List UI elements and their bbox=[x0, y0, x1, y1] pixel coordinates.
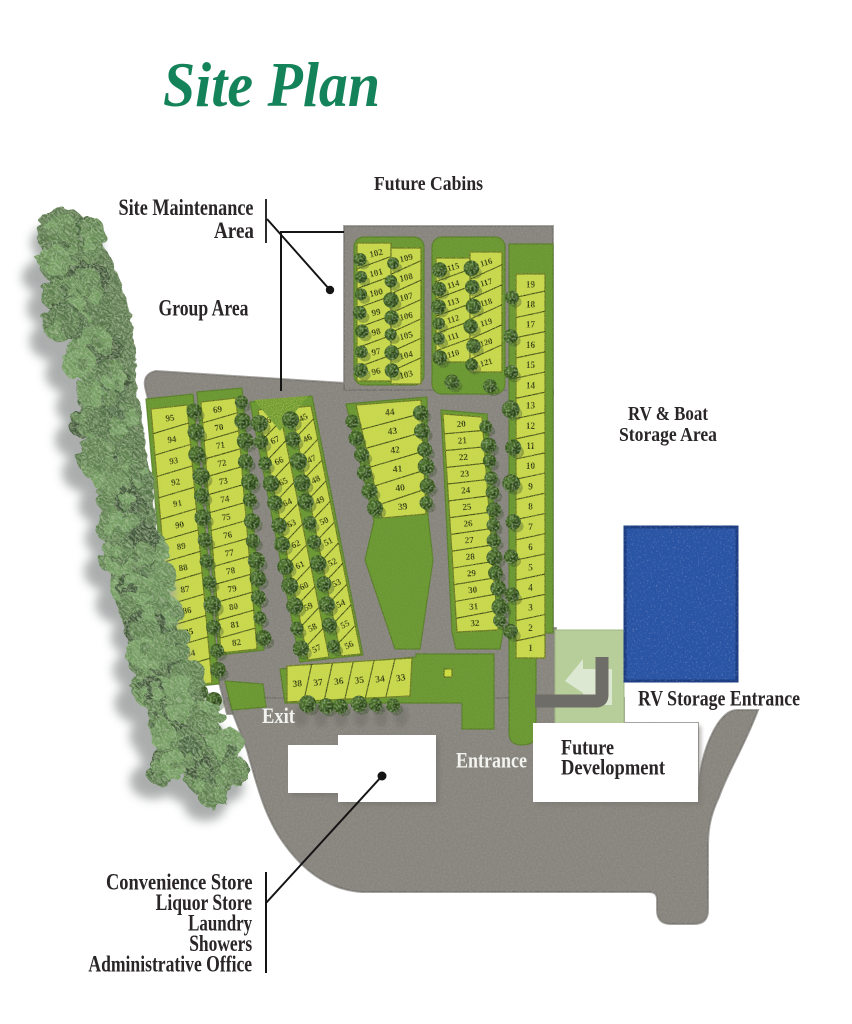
svg-text:26: 26 bbox=[463, 518, 473, 529]
svg-text:Site Plan: Site Plan bbox=[163, 50, 380, 120]
svg-text:21: 21 bbox=[457, 435, 467, 446]
svg-text:11: 11 bbox=[526, 441, 535, 451]
svg-text:43: 43 bbox=[387, 427, 398, 438]
svg-text:44: 44 bbox=[385, 408, 396, 419]
svg-text:Area: Area bbox=[214, 218, 254, 243]
svg-text:37: 37 bbox=[313, 678, 324, 689]
svg-text:12: 12 bbox=[526, 421, 536, 431]
svg-text:35: 35 bbox=[354, 676, 365, 687]
svg-text:31: 31 bbox=[469, 601, 479, 612]
svg-text:18: 18 bbox=[526, 300, 536, 310]
svg-text:7: 7 bbox=[528, 522, 533, 532]
svg-text:5: 5 bbox=[528, 562, 533, 572]
svg-text:22: 22 bbox=[459, 452, 469, 463]
svg-text:24: 24 bbox=[461, 485, 471, 496]
svg-text:40: 40 bbox=[395, 483, 406, 494]
svg-text:23: 23 bbox=[460, 468, 470, 479]
svg-text:30: 30 bbox=[468, 584, 478, 595]
svg-text:16: 16 bbox=[526, 340, 536, 350]
svg-text:38: 38 bbox=[292, 679, 303, 690]
svg-text:13: 13 bbox=[526, 401, 536, 411]
svg-text:Storage Area: Storage Area bbox=[619, 424, 717, 446]
svg-text:Future Cabins: Future Cabins bbox=[374, 173, 483, 195]
svg-text:1: 1 bbox=[528, 643, 533, 653]
svg-text:Exit: Exit bbox=[262, 703, 295, 728]
svg-text:28: 28 bbox=[465, 551, 475, 562]
svg-text:27: 27 bbox=[464, 535, 474, 546]
svg-text:8: 8 bbox=[528, 502, 533, 512]
svg-text:2: 2 bbox=[528, 623, 533, 633]
svg-text:14: 14 bbox=[526, 380, 536, 390]
svg-text:4: 4 bbox=[528, 583, 533, 593]
svg-text:6: 6 bbox=[528, 542, 533, 552]
svg-text:29: 29 bbox=[467, 568, 477, 579]
svg-text:15: 15 bbox=[526, 360, 536, 370]
svg-text:Site Maintenance: Site Maintenance bbox=[119, 195, 254, 220]
svg-text:20: 20 bbox=[456, 418, 466, 429]
svg-text:32: 32 bbox=[470, 618, 480, 629]
svg-text:17: 17 bbox=[526, 320, 536, 330]
svg-text:Group Area: Group Area bbox=[159, 296, 249, 321]
svg-text:36: 36 bbox=[334, 677, 345, 688]
svg-text:39: 39 bbox=[398, 502, 409, 513]
svg-text:RV & Boat: RV & Boat bbox=[628, 403, 708, 425]
svg-text:41: 41 bbox=[392, 464, 403, 475]
svg-text:42: 42 bbox=[390, 445, 401, 456]
svg-text:Entrance: Entrance bbox=[456, 748, 527, 773]
svg-text:Development: Development bbox=[561, 755, 666, 780]
svg-text:3: 3 bbox=[528, 603, 533, 613]
svg-text:9: 9 bbox=[528, 481, 533, 491]
svg-text:34: 34 bbox=[375, 674, 386, 685]
svg-text:25: 25 bbox=[462, 501, 472, 512]
svg-text:Administrative Office: Administrative Office bbox=[88, 952, 252, 977]
svg-text:RV Storage Entrance: RV Storage Entrance bbox=[638, 686, 800, 711]
svg-text:19: 19 bbox=[526, 279, 536, 289]
svg-text:10: 10 bbox=[526, 461, 536, 471]
svg-text:33: 33 bbox=[396, 673, 407, 684]
